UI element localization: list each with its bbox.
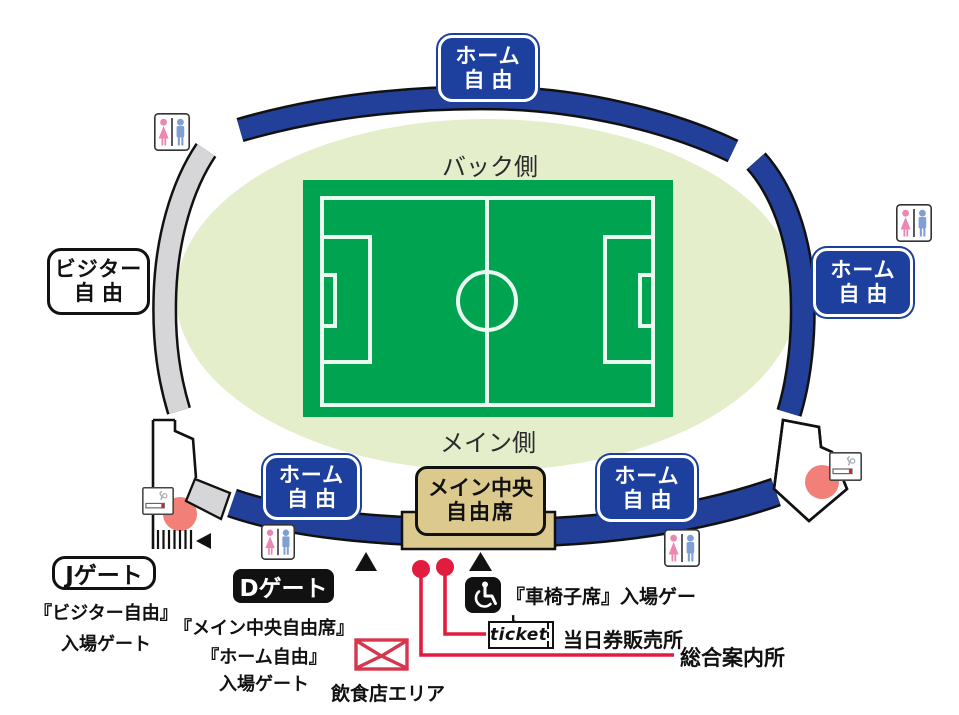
section-text: ビジター: [55, 258, 143, 282]
gate-arrow-up-icon-1: [355, 552, 377, 571]
section-text: ホーム: [455, 45, 520, 69]
gate-arrow-up-icon-2: [469, 552, 492, 571]
information-caption: 総合案内所: [680, 642, 810, 672]
smoking-icon: [142, 487, 174, 515]
section-label-main-central: メイン中央 自由席: [415, 466, 546, 536]
gate-d-label: Dゲート: [233, 569, 334, 603]
food-area-caption: 飲食店エリア: [331, 679, 461, 706]
gate-j-caption-line1: 『ビジター自由』: [25, 599, 187, 625]
gate-j-label: Jゲート: [52, 556, 156, 590]
location-marker-tickets: [436, 558, 454, 576]
restroom-icon: [261, 524, 295, 560]
section-label-visitor: ビジター 自由: [47, 248, 150, 315]
wheelchair-icon: [465, 577, 501, 613]
section-text: 自由: [457, 69, 520, 93]
section-text: 自由: [832, 283, 895, 307]
ticket-logo-text: ticket: [490, 625, 547, 645]
section-text: メイン中央: [428, 477, 533, 501]
ticket-logo: ticket: [488, 621, 554, 649]
restroom-icon: [664, 529, 700, 567]
field-pitch: [303, 180, 673, 417]
field-label-back: バック側: [420, 147, 560, 182]
smoking-icon: [829, 452, 862, 481]
gate-d-caption-line1: 『メイン中央自由席』: [164, 614, 364, 640]
gate-j-caption-line2: 入場ゲート: [25, 630, 187, 656]
section-text: 自由: [280, 488, 343, 512]
ticket-stub-divider: [547, 623, 552, 647]
field-label-main: メイン側: [418, 423, 558, 458]
section-text: ホーム: [830, 259, 895, 283]
stadium-map: バック側 メイン側 ホーム 自由 ホーム 自由 ホーム 自由 ホーム 自由 ビジ…: [0, 0, 959, 715]
gate-arrow-left-icon: [196, 533, 211, 549]
section-text: ホーム: [279, 464, 344, 488]
turnstile-hatch: [158, 530, 191, 549]
section-text: 自由席: [446, 501, 515, 525]
section-label-home-right: ホーム 自由: [813, 248, 913, 317]
restroom-icon: [896, 204, 932, 242]
section-label-home-top: ホーム 自由: [438, 35, 538, 102]
section-text: 自由: [67, 282, 130, 306]
section-label-home-bottom-left: ホーム 自由: [263, 455, 360, 520]
restroom-icon: [154, 113, 190, 151]
section-text: 自由: [616, 489, 679, 513]
gate-d-caption-line2: 『ホーム自由』: [164, 643, 364, 669]
section-text: ホーム: [614, 465, 679, 489]
section-label-home-bottom-right: ホーム 自由: [597, 455, 697, 522]
location-marker-info: [412, 560, 430, 578]
